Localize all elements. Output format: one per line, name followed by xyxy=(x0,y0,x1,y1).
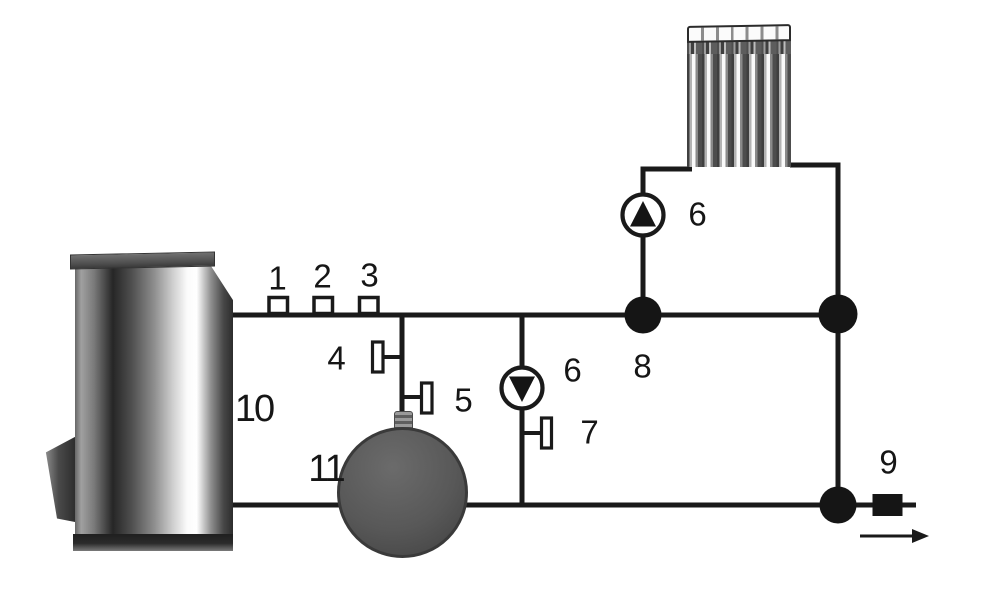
label-5: 5 xyxy=(454,384,471,417)
junction-dot-right xyxy=(819,295,858,334)
label-9: 9 xyxy=(879,446,896,479)
expansion-tank xyxy=(337,427,468,558)
label-4: 4 xyxy=(327,342,344,375)
sensor-pocket-2-icon xyxy=(314,298,333,314)
valve-5-icon xyxy=(422,383,433,413)
outlet-fitting-9-icon xyxy=(873,494,903,516)
label-1: 1 xyxy=(268,262,285,295)
label-10: 10 xyxy=(235,390,273,428)
pipework-layer xyxy=(0,0,1000,591)
valve-4-icon xyxy=(373,342,384,372)
label-7: 7 xyxy=(580,416,597,449)
junction-dot-bottom xyxy=(820,487,857,524)
radiator xyxy=(687,25,791,177)
radiator-fins xyxy=(687,54,791,167)
sensor-pocket-1-icon xyxy=(269,298,288,314)
flow-arrow-icon xyxy=(860,529,929,543)
sensor-pocket-3-icon xyxy=(360,298,379,314)
radiator-top-header xyxy=(687,24,791,43)
label-8: 8 xyxy=(633,350,650,383)
radiator-pump-icon xyxy=(623,195,664,236)
junction-dot-8 xyxy=(625,297,662,334)
bypass-pump-icon xyxy=(502,368,543,409)
label-2: 2 xyxy=(313,260,330,293)
label-11: 11 xyxy=(308,450,343,488)
label-3: 3 xyxy=(360,259,377,292)
label-6-top: 6 xyxy=(688,198,705,231)
valve-7-icon xyxy=(542,418,552,448)
radiator-section-joins xyxy=(687,41,791,54)
radiator-return-pipe xyxy=(790,165,838,505)
label-6-mid: 6 xyxy=(563,354,580,387)
radiator-feed-pipe xyxy=(643,169,692,315)
heating-schematic-canvas: 1 2 3 4 5 6 7 8 6 9 10 11 xyxy=(0,0,1000,591)
